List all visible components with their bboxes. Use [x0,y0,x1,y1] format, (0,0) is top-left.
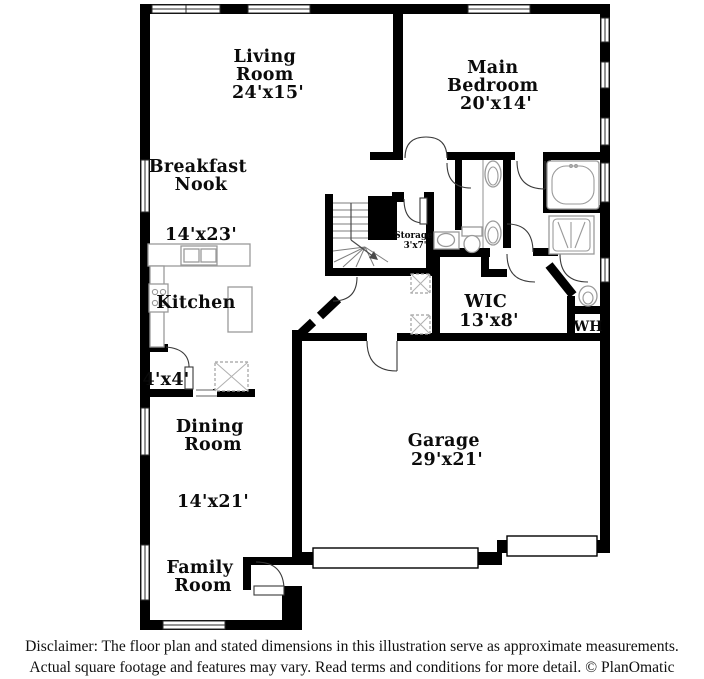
closet-door [166,347,189,369]
cased-opening [196,390,217,397]
window [141,545,149,600]
room-label-main-bedroom: Main Bedroom 20'x14' [447,58,545,114]
wic-door [507,254,535,282]
window [163,621,225,629]
utility-pad [411,274,430,293]
family-room-door-leaf [254,586,284,595]
dining-room-dims: 14'x21' [177,492,249,512]
disclaimer: Disclaimer: The floor plan and stated di… [0,637,704,678]
garage-door-panel [313,548,478,568]
room-label-dining-room: Dining Room [176,417,250,455]
shower [549,216,594,254]
interior-walls [140,4,610,397]
window [601,163,609,202]
disclaimer-line-1: Disclaimer: The floor plan and stated di… [0,637,704,658]
toilet [462,227,482,253]
bedroom-double-door [405,137,426,158]
room-label-wic: WIC 13'x8' [459,292,518,331]
pedestal-sink [579,286,597,306]
room-labels: Living Room 24'x15' Main Bedroom 20'x14'… [142,47,602,596]
garage-entry-door [367,341,397,371]
window [601,62,609,88]
bath-hall-door [517,161,545,189]
window [468,5,530,13]
room-label-water-heater: WH [573,319,603,335]
disclaimer-line-2: Actual square footage and features may v… [0,658,704,679]
garage-door-panel [507,536,597,556]
stair-void [368,196,397,240]
utility-pad [411,315,430,334]
garage-doors [313,536,597,568]
window [152,5,220,13]
kitchen-fixtures [148,244,252,391]
room-label-breakfast-nook: Breakfast Nook [149,157,254,195]
window [601,118,609,145]
room-label-living-room: Living Room 24'x15' [232,47,304,103]
bathtub [547,161,599,209]
window [141,408,149,455]
window [248,5,310,13]
bedroom-double-door [426,137,447,158]
floor-plan-drawing: Living Room 24'x15' Main Bedroom 20'x14'… [0,0,704,637]
pantry [215,362,248,391]
room-label-closet: 4'x4' [142,370,189,390]
breakfast-nook-dims: 14'x23' [165,225,237,245]
window [601,258,609,282]
stairs-hall-door [333,277,357,301]
window [601,18,609,42]
room-label-garage: Garage 29'x21' [408,431,486,470]
vanity-sink [485,161,501,187]
storage-door-leaf [420,198,427,224]
corner-sink [434,232,459,249]
vanity-sink [485,221,501,245]
room-label-kitchen: Kitchen [156,293,235,313]
room-label-family-room: Family Room [167,558,240,596]
utility-pads [411,274,430,334]
floor-plan-page: Living Room 24'x15' Main Bedroom 20'x14'… [0,0,704,679]
